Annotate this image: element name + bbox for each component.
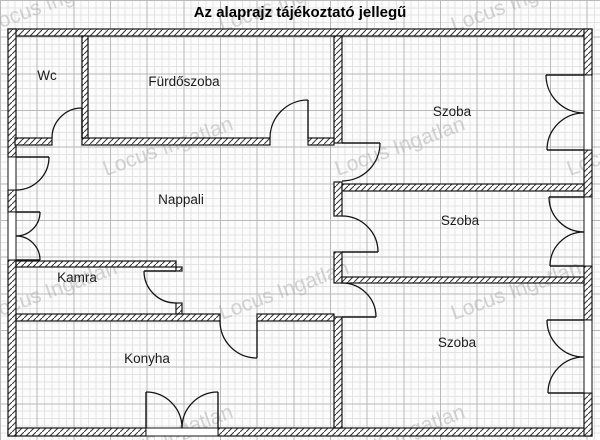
wall	[82, 138, 270, 145]
watermark-text: Locus Ingatlan	[332, 112, 468, 180]
floor-plan: Locus Ingatlan Locus Ingatlan Locus Inga…	[0, 0, 600, 440]
window-arc	[547, 113, 584, 150]
wall	[584, 150, 592, 197]
window	[584, 197, 592, 266]
door-arc	[144, 271, 176, 303]
window-arc	[16, 236, 40, 260]
wall	[342, 184, 584, 191]
wall	[16, 261, 176, 267]
window-arc	[16, 212, 40, 236]
wall	[218, 428, 592, 436]
door-arc	[220, 321, 257, 358]
wall	[334, 182, 342, 216]
wall	[176, 303, 182, 314]
wall	[334, 252, 342, 283]
door-arc	[342, 216, 378, 252]
wall	[176, 267, 182, 271]
wall	[16, 314, 220, 321]
wall	[257, 314, 334, 321]
wall	[15, 138, 52, 145]
room-label-kamra: Kamra	[57, 270, 97, 285]
room-label-szoba-bottom: Szoba	[438, 335, 477, 350]
room-label-konyha: Konyha	[124, 351, 170, 366]
window-openings	[8, 75, 592, 436]
wall	[308, 138, 334, 145]
wall	[584, 266, 592, 320]
window	[584, 320, 592, 393]
window-arc	[16, 157, 49, 190]
window-arc	[548, 357, 584, 393]
room-label-szoba-top: Szoba	[433, 104, 472, 119]
wall	[334, 317, 342, 428]
inner-walls	[15, 36, 584, 428]
wall	[82, 36, 88, 138]
window-arc	[546, 75, 584, 113]
window	[8, 212, 16, 260]
wall	[334, 36, 342, 143]
watermark-layer: Locus Ingatlan Locus Ingatlan Locus Inga…	[0, 0, 600, 440]
outer-walls	[8, 29, 592, 436]
wall	[8, 260, 16, 436]
room-label-wc: Wc	[37, 68, 57, 83]
watermark-text: Locus Ingatlan	[564, 112, 600, 180]
door-arc	[52, 108, 82, 138]
window-arc	[549, 197, 584, 232]
window	[584, 75, 592, 150]
wall	[8, 29, 592, 36]
wall	[342, 277, 584, 283]
wall	[584, 393, 592, 436]
window-arc	[547, 320, 584, 357]
wall	[8, 428, 146, 436]
room-label-nappali: Nappali	[158, 192, 204, 207]
window	[146, 428, 218, 436]
page-title: Az alaprajz tájékoztató jellegű	[194, 4, 407, 21]
wall	[584, 29, 592, 75]
window-leaves	[16, 75, 584, 428]
floor-plan-drawing: Locus Ingatlan Locus Ingatlan Locus Inga…	[0, 0, 600, 440]
watermark-text: Locus Ingatlan	[100, 112, 236, 180]
room-label-szoba-middle: Szoba	[441, 213, 480, 228]
door-arc	[342, 283, 376, 317]
room-label-furdoszoba: Fürdőszoba	[148, 74, 220, 89]
wall	[8, 190, 16, 212]
door-arc	[270, 100, 308, 138]
window	[8, 157, 16, 190]
